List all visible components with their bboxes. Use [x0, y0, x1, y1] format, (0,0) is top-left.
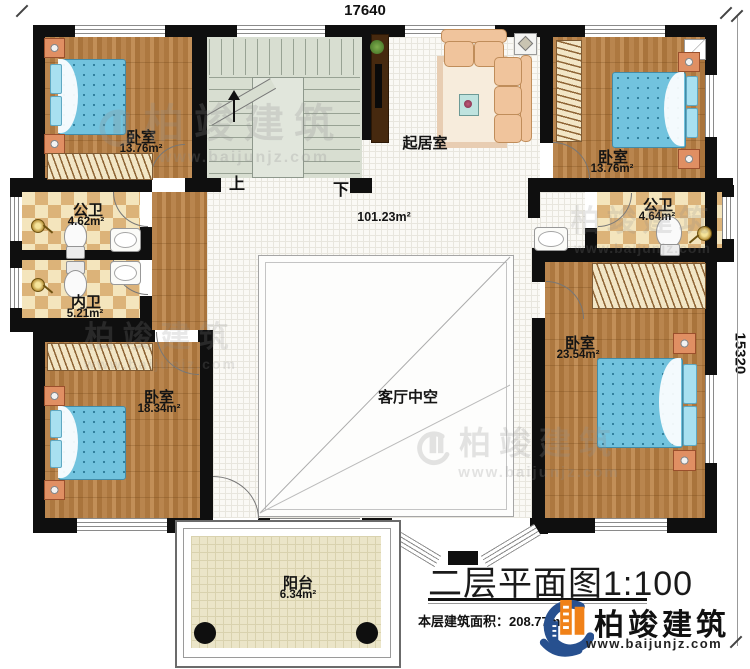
- dimension-tick: [730, 636, 743, 649]
- bedside-table: [44, 38, 65, 58]
- bedside-table: [678, 149, 700, 169]
- sofa-seat: [494, 86, 522, 115]
- room-area-balcony: 6.34m²: [280, 589, 316, 601]
- wall-segment: [540, 25, 553, 143]
- window: [705, 75, 717, 137]
- wardrobe: [47, 343, 153, 371]
- plant: [370, 40, 384, 54]
- stairs-down-label: 下: [333, 176, 349, 200]
- bedside-table: [678, 52, 700, 72]
- window: [75, 25, 165, 37]
- toilet-tank: [66, 246, 85, 259]
- dimension-tick: [720, 7, 733, 20]
- wall-segment: [528, 178, 733, 192]
- dimension-line-right: [737, 16, 738, 646]
- window: [237, 25, 325, 37]
- room-label-void: 客厅中空: [378, 386, 438, 407]
- sofa-seat: [494, 57, 522, 86]
- room-area-bedroom-top-right: 13.76m²: [591, 163, 634, 175]
- room-area-bedroom-top-left: 13.76m²: [120, 143, 163, 155]
- column: [194, 622, 216, 644]
- stair-treads-right: [302, 77, 360, 176]
- bed-pillow: [50, 410, 62, 438]
- bedside-table: [673, 333, 696, 354]
- shower-head: [697, 226, 712, 241]
- room-area-bath-public-right: 4.64m²: [639, 211, 675, 223]
- wall-segment: [140, 227, 152, 260]
- stair-direction-arrow: [233, 98, 235, 122]
- bed-pillow: [686, 76, 698, 106]
- wall-segment: [207, 178, 221, 192]
- wall-segment: [200, 342, 213, 533]
- company-logo-icon: [536, 594, 594, 662]
- window: [585, 25, 665, 37]
- window: [10, 268, 22, 308]
- walk-in-closet: [592, 263, 706, 309]
- dimension-right: 15320: [732, 333, 749, 381]
- wardrobe: [556, 40, 582, 142]
- bedside-table: [44, 134, 65, 154]
- window: [10, 197, 22, 241]
- void-diagonal-lines: [258, 255, 512, 515]
- table-flowers: [464, 100, 472, 108]
- bedside-table: [44, 480, 65, 500]
- floor-plan-canvas: 卧室 13.76m² 公卫 4.62m² 内卫 5.21m² 卧室 18.34m…: [0, 0, 750, 669]
- bed-pillow: [50, 64, 62, 94]
- wardrobe: [47, 153, 153, 180]
- wall-segment: [705, 192, 717, 518]
- room-area-bedroom-bottom-right: 23.54m²: [557, 349, 600, 361]
- sofa-seat: [494, 114, 522, 143]
- bed-pillow: [683, 406, 697, 446]
- bed-pillow: [50, 440, 62, 468]
- company-website: www.baijunjz.com: [586, 636, 722, 651]
- room-area-bath-public-left: 4.62m²: [68, 216, 104, 228]
- wall-segment: [33, 330, 155, 342]
- bed-pillow: [50, 96, 62, 126]
- wall-segment: [362, 37, 371, 140]
- stair-treads-top: [209, 39, 360, 75]
- wall-segment: [33, 330, 45, 533]
- room-label-living-room: 起居室: [402, 132, 447, 153]
- window: [595, 518, 667, 533]
- room-area-living-room: 101.23m²: [357, 210, 411, 224]
- bedside-table: [44, 386, 65, 406]
- toilet-tank: [660, 244, 680, 256]
- sofa-seat: [444, 41, 474, 67]
- bed-pillow: [683, 364, 697, 404]
- tv: [375, 64, 382, 108]
- wall-segment: [192, 25, 207, 192]
- room-area-bath-private-left: 5.21m²: [67, 308, 103, 320]
- wall-segment: [198, 330, 213, 342]
- wall-segment: [585, 228, 597, 248]
- bedside-table: [673, 450, 696, 471]
- sink: [110, 261, 141, 285]
- window: [722, 197, 734, 239]
- wall-segment: [10, 178, 152, 192]
- dimension-tick: [16, 5, 29, 18]
- sink: [534, 227, 568, 251]
- wall-segment: [532, 248, 545, 282]
- window: [705, 375, 717, 463]
- wall-segment: [532, 318, 545, 518]
- sink: [110, 228, 141, 252]
- stair-arrow-head: [228, 90, 240, 100]
- wall-segment: [528, 192, 540, 218]
- room-area-bedroom-bottom-left: 18.34m²: [138, 403, 181, 415]
- dimension-top: 17640: [344, 2, 386, 19]
- window: [77, 518, 167, 533]
- wall-segment: [350, 178, 372, 193]
- stairs-up-label: 上: [229, 170, 245, 194]
- bed-pillow: [686, 108, 698, 138]
- column: [356, 622, 378, 644]
- corridor-floor: [152, 192, 207, 330]
